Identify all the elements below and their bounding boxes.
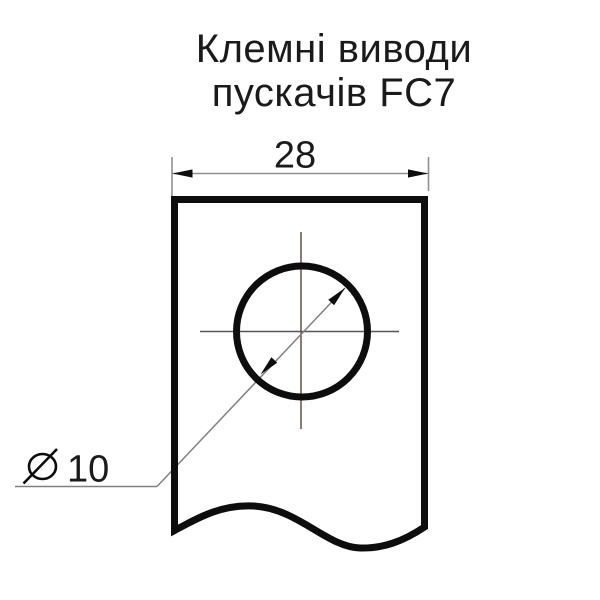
width-dimension-value: 28 <box>274 135 316 177</box>
hole-diameter-value: 10 <box>67 449 109 491</box>
diameter-arrow-lower-icon <box>261 357 278 374</box>
width-dim-arrow-right-icon <box>408 169 428 177</box>
plate-outline <box>175 200 425 549</box>
diameter-symbol-icon <box>24 449 58 484</box>
diameter-leader-lines <box>15 288 345 487</box>
technical-drawing: 28 10 <box>0 0 600 600</box>
drawing-canvas: Клемні виводи пускачів FC7 28 <box>0 0 600 600</box>
width-dim-arrow-left-icon <box>173 169 193 177</box>
diameter-dimension-line <box>157 288 345 487</box>
